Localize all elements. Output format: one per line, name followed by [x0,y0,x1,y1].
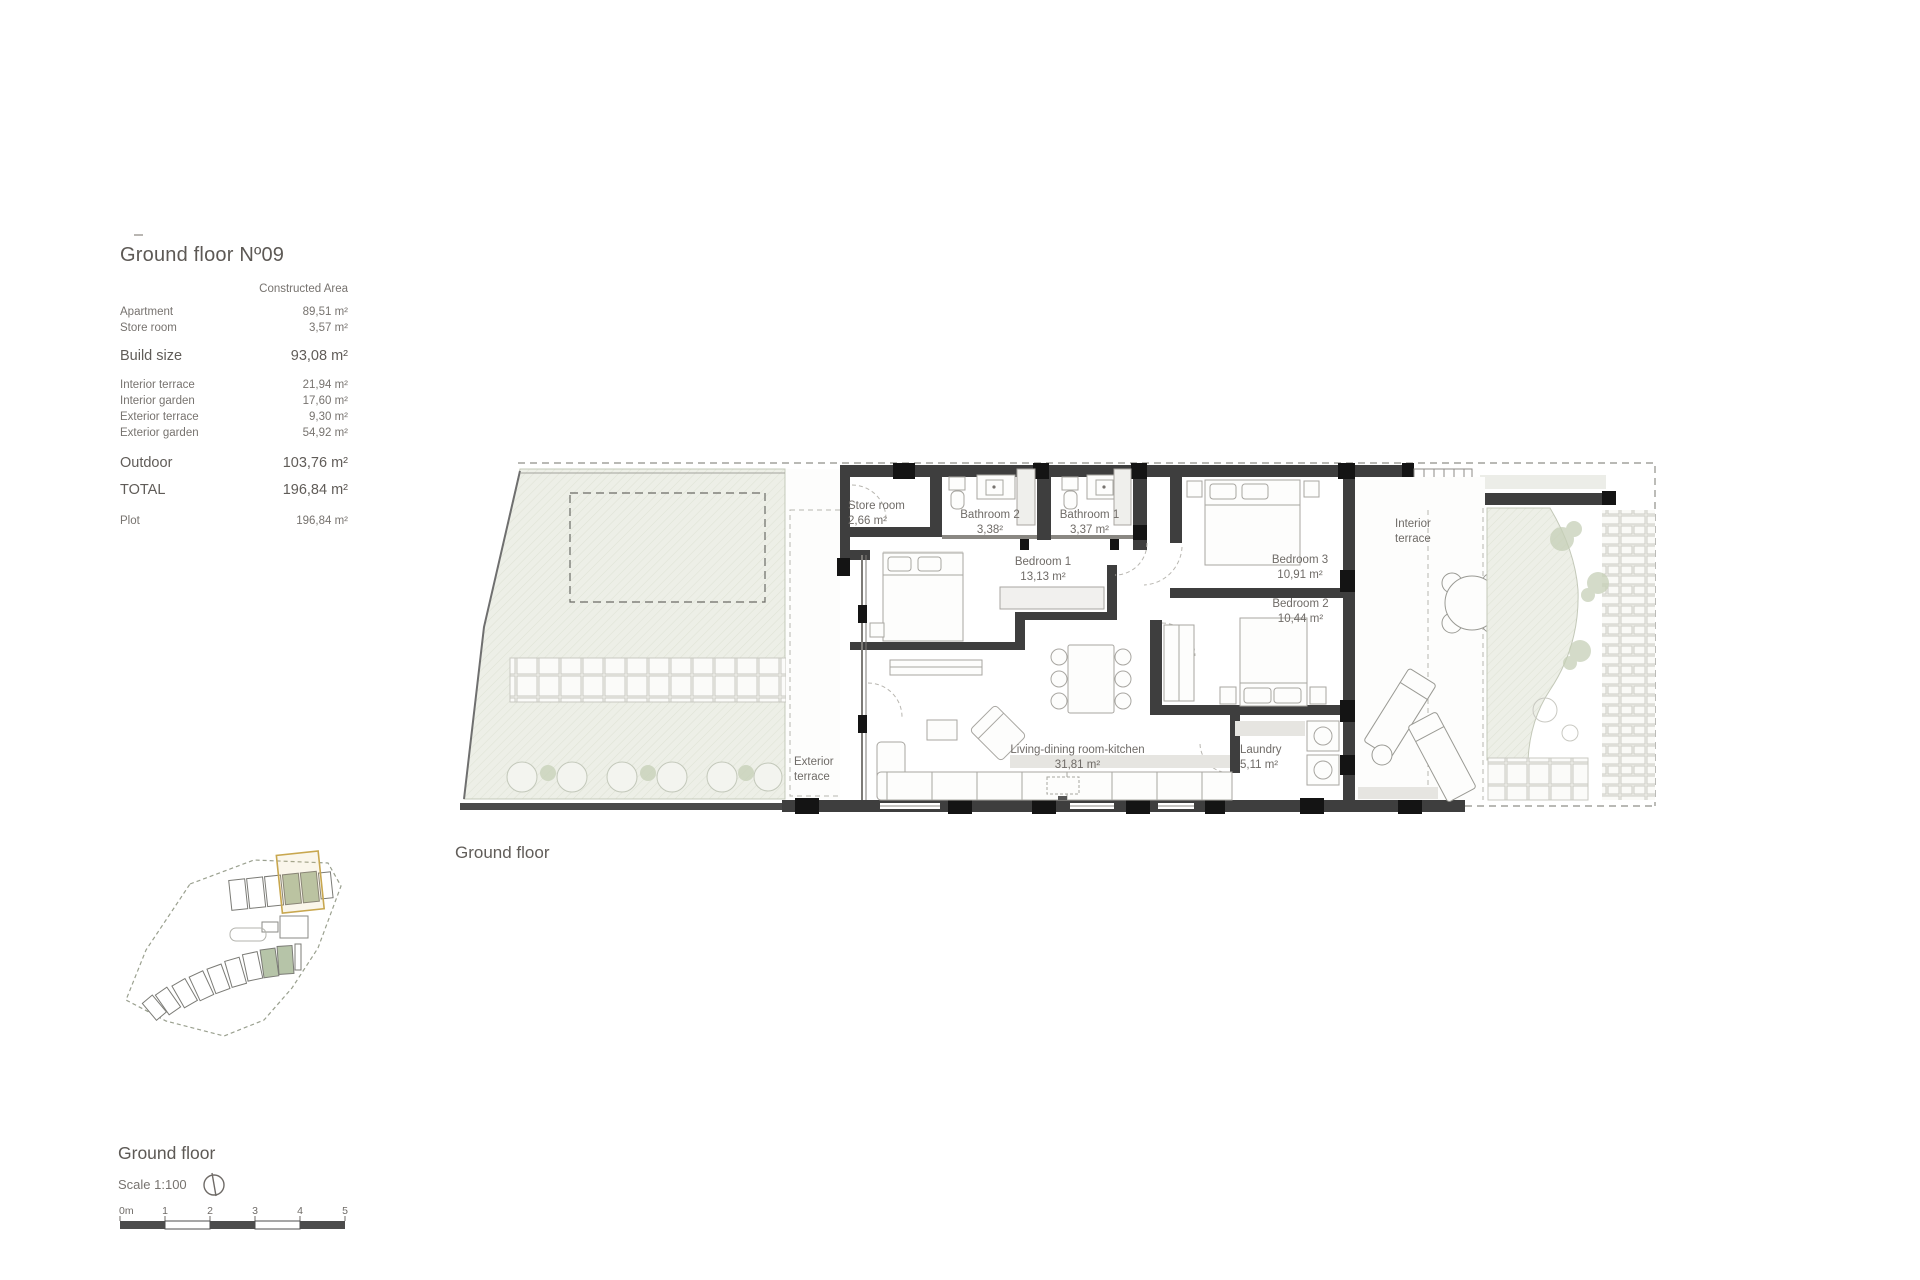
scale-tick-4: 4 [297,1205,303,1217]
site-units-bottom-row [142,944,301,1020]
area-row-exterior-garden: Exterior garden54,92 m² [120,425,348,441]
page-title: Ground floor Nº09 [120,244,348,267]
north-arrow-icon [201,1171,227,1197]
site-map-svg [112,850,357,1050]
area-row-interior-terrace: Interior terrace21,94 m² [120,377,348,393]
site-units-middle [230,916,308,941]
area-row-interior-garden: Interior garden17,60 m² [120,393,348,409]
footer-title: Ground floor [118,1143,378,1164]
room-label-bathroom-1: Bathroom 1 3,37 m² [1042,508,1137,537]
scale-tick-0: 0m [119,1205,134,1217]
area-summary-panel: Ground floor Nº09 Constructed Area Apart… [120,234,348,529]
site-units-top-row [227,850,335,918]
title-block: Ground floor Scale 1:100 0m 1 2 3 4 5 [118,1143,378,1242]
scale-tick-3: 3 [252,1205,258,1217]
room-label-bathroom-2: Bathroom 2 3,38² [940,508,1040,537]
plan-caption: Ground floor [455,843,550,863]
scale-tick-5: 5 [342,1205,348,1217]
scale-label: Scale 1:100 [118,1177,187,1192]
floor-plan: Store room 2,66 m² Bathroom 2 3,38² Bath… [450,455,1662,825]
room-label-store-room: Store room 2,66 m² [848,499,943,528]
room-label-laundry: Laundry 5,11 m² [1240,743,1320,772]
area-row-outdoor: Outdoor103,76 m² [120,453,348,474]
area-row-exterior-terrace: Exterior terrace9,30 m² [120,409,348,425]
highlighted-unit-box [276,851,324,913]
area-row-apartment: Apartment89,51 m² [120,304,348,320]
room-label-bedroom-3: Bedroom 3 10,91 m² [1250,553,1350,582]
scale-bar: 0m 1 2 3 4 5 [118,1203,368,1237]
garden-fence [460,803,782,810]
bedroom-2-furniture [1164,618,1326,706]
stone-path [1602,510,1655,800]
room-label-exterior-terrace: Exterior terrace [794,755,856,784]
area-row-build-size: Build size93,08 m² [120,346,348,367]
area-row-store-room: Store room3,57 m² [120,320,348,336]
site-location-map [112,850,357,1055]
scale-tick-1: 1 [162,1205,168,1217]
room-label-bedroom-1: Bedroom 1 13,13 m² [988,555,1098,584]
scale-tick-2: 2 [207,1205,213,1217]
area-row-plot: Plot196,84 m² [120,513,348,529]
garden-paving-right [1488,758,1588,800]
artifact-mark [134,234,143,236]
column-header: Constructed Area [120,283,348,295]
exterior-garden-right [1487,508,1655,800]
area-row-total: TOTAL196,84 m² [120,480,348,501]
room-label-interior-terrace: Interior terrace [1395,517,1461,546]
exterior-garden-left [460,469,786,810]
room-label-bedroom-2: Bedroom 2 10,44 m² [1248,597,1353,626]
garden-paving [510,658,786,702]
room-label-living: Living-dining room-kitchen 31,81 m² [985,743,1170,772]
